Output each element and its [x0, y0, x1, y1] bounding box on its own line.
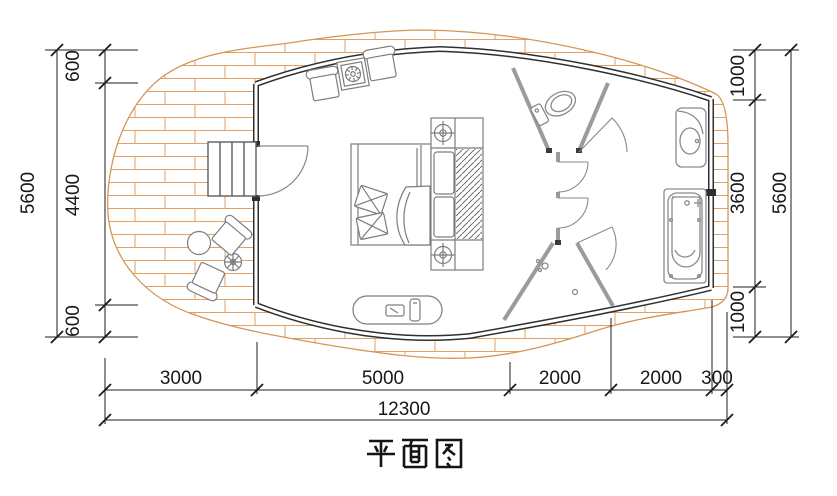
dim-right-seg-1: 3600 [728, 172, 749, 214]
title-glyph-tu [437, 440, 461, 467]
drawing-title [367, 440, 461, 467]
dim-bottom-seg-2: 2000 [539, 368, 581, 389]
dim-bottom-seg-0: 3000 [160, 368, 202, 389]
dim-left-seg-0: 600 [63, 50, 84, 82]
dim-left-seg-1: 4400 [63, 174, 84, 216]
floor-plan-svg: 5600 600 4400 600 1000 3600 1000 5600 30… [0, 0, 837, 496]
dim-bottom-total: 12300 [378, 399, 431, 420]
dim-left-seg-2: 600 [63, 305, 84, 337]
dim-left-total: 5600 [18, 172, 39, 214]
bed-blanket [397, 186, 430, 245]
floor-plan-canvas: 平面图 [0, 0, 837, 496]
dim-bottom-seg-3: 2000 [640, 368, 682, 389]
dim-bottom-seg-4: 300 [701, 368, 733, 389]
wardrobe-unit [431, 118, 483, 270]
plant-table [337, 58, 369, 90]
dim-right-total: 5600 [770, 172, 791, 214]
title-glyph-ping [367, 441, 395, 467]
bed [351, 144, 431, 245]
title-glyph-mian [402, 440, 428, 467]
bathtub [664, 189, 706, 283]
deck-round-table [188, 232, 211, 255]
dim-bottom-seg-1: 5000 [362, 368, 404, 389]
wardrobe-hanging-clothes [456, 149, 482, 239]
dim-right-seg-2: 1000 [728, 291, 749, 333]
dim-right-seg-0: 1000 [728, 55, 749, 97]
wall-joint-block [706, 189, 716, 196]
parasol-base [225, 254, 242, 271]
chaise-lounge [353, 296, 442, 324]
sink-vanity [676, 108, 706, 167]
